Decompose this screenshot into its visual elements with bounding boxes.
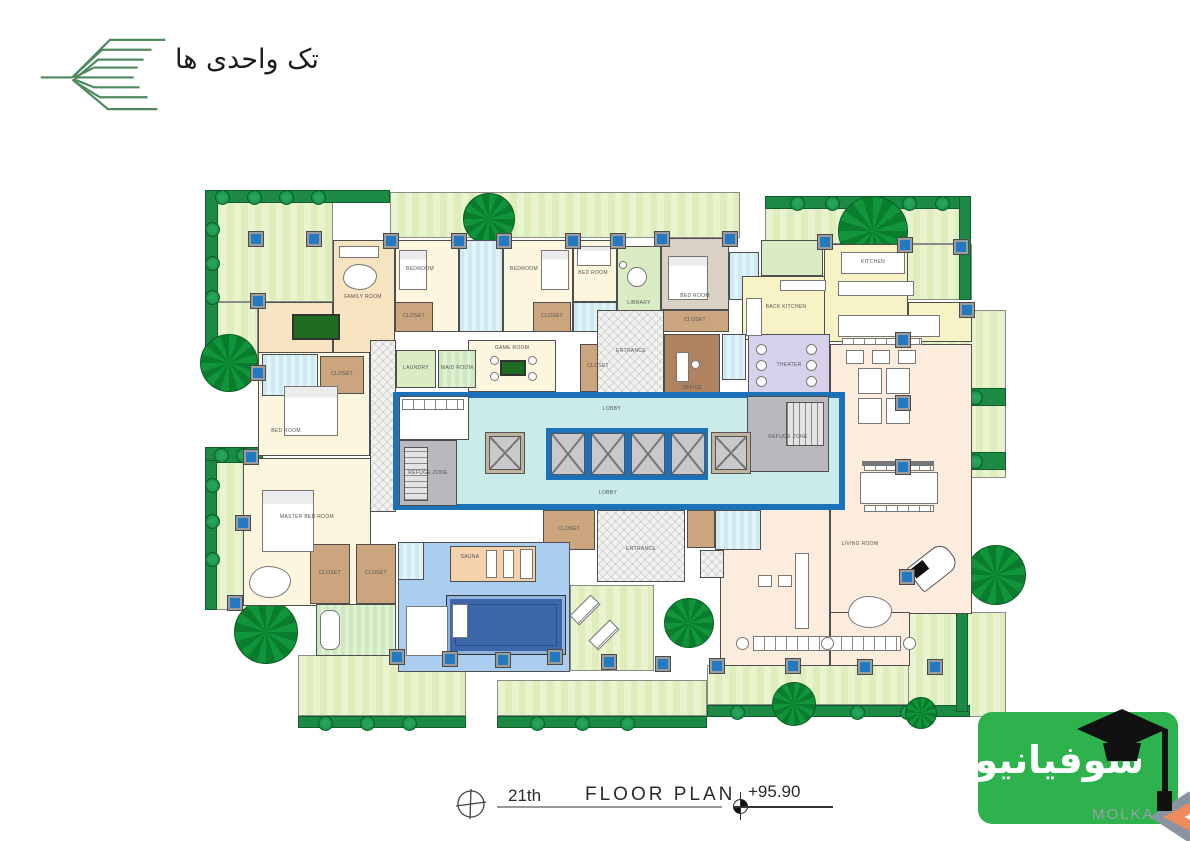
column <box>896 460 910 474</box>
room-green <box>761 240 823 276</box>
column <box>251 366 265 380</box>
column <box>548 650 562 664</box>
column <box>896 333 910 347</box>
room-label: BED ROOM <box>680 293 710 299</box>
bush <box>205 256 220 271</box>
chair <box>619 261 627 269</box>
room-label: BEDROOM <box>510 266 538 272</box>
room-bath <box>398 542 424 580</box>
tree <box>200 334 258 392</box>
tree <box>664 598 714 648</box>
room-label: BEDROOM <box>406 266 434 272</box>
room-label: CLOSET <box>319 570 341 576</box>
plan-title: FLOOR PLAN <box>585 784 735 806</box>
hedge <box>497 716 707 728</box>
chair <box>806 360 817 371</box>
kitchen-counter <box>838 281 914 296</box>
bench <box>795 553 809 629</box>
room-label: THEATER <box>776 362 801 368</box>
room-label: GAME ROOM <box>495 345 529 351</box>
room-label: MAID ROOM <box>441 365 473 371</box>
bush <box>247 190 262 205</box>
chair <box>528 356 537 365</box>
bush <box>205 514 220 529</box>
sofa <box>858 368 882 394</box>
room-label: REFUGE ZONE <box>768 434 807 440</box>
column <box>898 238 912 252</box>
game-table <box>500 360 526 376</box>
sofa <box>339 246 379 258</box>
bush <box>730 705 745 720</box>
column <box>566 234 580 248</box>
column <box>611 234 625 248</box>
bush <box>575 716 590 731</box>
room-label: SAUNA <box>461 554 480 560</box>
chair <box>490 356 499 365</box>
column <box>236 516 250 530</box>
room-label: LIBRARY <box>627 300 650 306</box>
column <box>497 234 511 248</box>
bush <box>530 716 545 731</box>
brand-title: تک واحدی ها <box>175 44 319 75</box>
elevator <box>715 436 747 470</box>
room-label: BACK KITCHEN <box>766 304 807 310</box>
elevation-value: +95.90 <box>748 782 800 802</box>
bathtub <box>320 610 340 650</box>
room-label: CLOSET <box>365 570 387 576</box>
room-label: CLOSET <box>558 526 580 532</box>
column <box>786 659 800 673</box>
sofa <box>886 368 910 394</box>
bed <box>577 246 611 266</box>
chairs <box>842 338 922 345</box>
bush <box>205 290 220 305</box>
room-label: BED ROOM <box>271 428 301 434</box>
chair <box>806 376 817 387</box>
room-label: FAMILY ROOM <box>344 294 382 300</box>
room-label: LAUNDRY <box>403 365 429 371</box>
page: تک واحدی ها <box>0 0 1190 841</box>
lounger <box>486 550 497 578</box>
round-table <box>736 637 749 650</box>
column <box>723 232 737 246</box>
chair <box>756 344 767 355</box>
column <box>251 294 265 308</box>
room-label: ENTRANCE <box>616 348 646 354</box>
chair <box>806 344 817 355</box>
chair <box>490 372 499 381</box>
chair <box>756 360 767 371</box>
round-table <box>821 637 834 650</box>
room-label: OFFICE <box>682 385 702 391</box>
room-label: LIVING ROOM <box>842 541 879 547</box>
column <box>656 657 670 671</box>
terrace-top-left <box>205 190 333 302</box>
column <box>954 240 968 254</box>
column <box>244 450 258 464</box>
bush <box>902 196 917 211</box>
bush <box>402 716 417 731</box>
elevator <box>671 433 705 475</box>
side-table <box>778 575 792 587</box>
column <box>443 652 457 666</box>
chair <box>756 376 767 387</box>
room-label: LOBBY <box>603 406 621 412</box>
corridor <box>700 550 724 578</box>
bush <box>850 705 865 720</box>
bush <box>360 716 375 731</box>
bush <box>620 716 635 731</box>
sofa <box>898 350 916 364</box>
side-table <box>758 575 772 587</box>
column <box>452 234 466 248</box>
elevator <box>489 436 521 470</box>
room-label: CLOSET <box>331 371 353 377</box>
room-label: BED ROOM <box>578 270 608 276</box>
elevator <box>551 433 585 475</box>
column <box>896 396 910 410</box>
room-label: KITCHEN <box>861 259 885 265</box>
elevation-underline <box>733 806 833 808</box>
graduation-cap-icon <box>1075 703 1173 821</box>
pool-table <box>292 314 340 340</box>
column <box>960 303 974 317</box>
column <box>390 650 404 664</box>
room-bath <box>722 334 746 380</box>
dining-table <box>860 472 938 504</box>
bush <box>205 552 220 567</box>
tree <box>905 697 937 729</box>
column <box>858 660 872 674</box>
tree <box>772 682 816 726</box>
pool-steps <box>452 604 468 638</box>
bush <box>214 448 229 463</box>
kitchen-table <box>838 315 940 337</box>
column <box>655 232 669 246</box>
round-table <box>627 267 647 287</box>
column <box>602 655 616 669</box>
room-label: CLOSET <box>541 313 563 319</box>
bush <box>205 478 220 493</box>
bush <box>205 222 220 237</box>
room-bath <box>715 510 761 550</box>
room-bath <box>459 240 503 332</box>
bush <box>935 196 950 211</box>
counter <box>780 280 826 291</box>
terrace-top-middle <box>390 192 740 238</box>
column <box>928 660 942 674</box>
bed <box>262 490 314 552</box>
north-symbol-icon <box>455 788 487 820</box>
room-label: ENTRANCE <box>626 546 656 552</box>
desk <box>676 352 689 382</box>
sofa <box>846 350 864 364</box>
column <box>496 653 510 667</box>
column <box>249 232 263 246</box>
counter <box>746 298 762 336</box>
column <box>710 659 724 673</box>
bush <box>790 196 805 211</box>
brand-logo-icon <box>38 26 170 125</box>
column <box>818 235 832 249</box>
room-label: CLOSET <box>587 363 609 369</box>
lounger <box>503 550 514 578</box>
column <box>307 232 321 246</box>
room-label: LOBBY <box>599 490 617 496</box>
elevator <box>591 433 625 475</box>
bush <box>215 190 230 205</box>
bush <box>279 190 294 205</box>
cabinet <box>520 549 533 579</box>
tree <box>234 600 298 664</box>
column <box>900 570 914 584</box>
kitchenette-counter <box>402 399 464 410</box>
bush <box>825 196 840 211</box>
room-label: REFUGE ZONE <box>408 470 447 476</box>
chair <box>691 360 700 369</box>
round-table <box>903 637 916 650</box>
sofa <box>872 350 890 364</box>
tree <box>966 545 1026 605</box>
elevator <box>631 433 665 475</box>
hedge <box>205 190 390 203</box>
room-label: MASTER BED ROOM <box>280 514 334 520</box>
hedge <box>956 612 968 712</box>
title-underline <box>497 806 722 808</box>
column <box>228 596 242 610</box>
bush <box>318 716 333 731</box>
bed <box>541 250 569 290</box>
floor-number: 21th <box>508 786 541 806</box>
bush <box>311 190 326 205</box>
chair <box>528 372 537 381</box>
terrace-bottom-middle <box>497 680 707 716</box>
room-label: CLOSET <box>684 317 706 323</box>
column <box>384 234 398 248</box>
chairs <box>864 505 934 512</box>
room-closet <box>687 510 715 548</box>
dining-table <box>406 606 448 656</box>
room-label: CLOSET <box>403 313 425 319</box>
sofa <box>858 398 882 424</box>
